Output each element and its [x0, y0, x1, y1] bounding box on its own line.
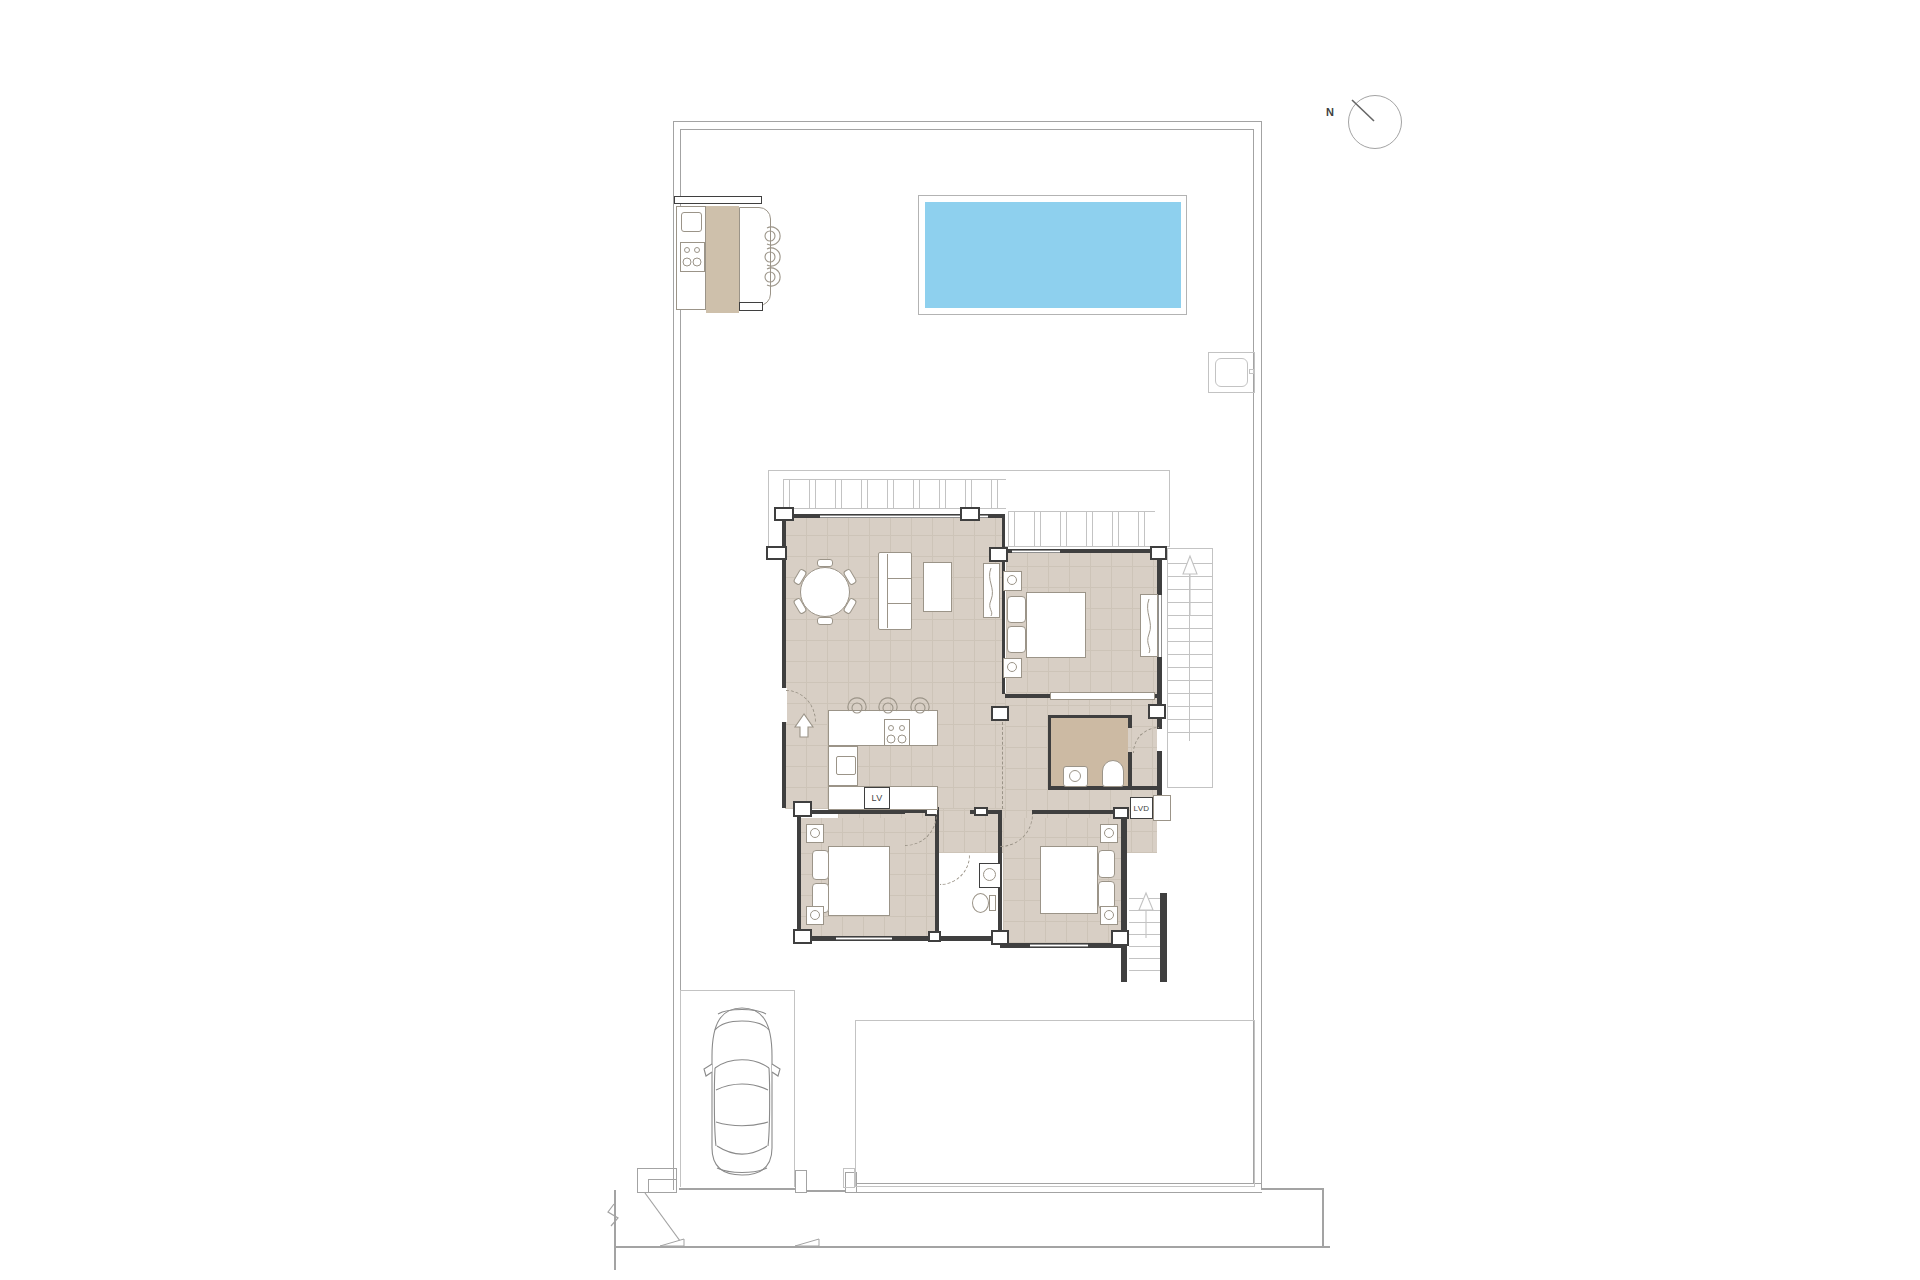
laundry-label: LVD: [1134, 804, 1150, 813]
bedroom3-south-window: [1030, 944, 1088, 948]
wall-bathroom2-west: [935, 814, 939, 940]
bed1-lamp: [1007, 575, 1017, 585]
bed3-pillow: [1098, 850, 1115, 878]
compass-north-label: N: [1326, 106, 1334, 118]
wall-ensuite-east-a: [1128, 715, 1132, 728]
wall-east-lower: [1121, 810, 1127, 982]
deck-slats-right: [1008, 511, 1155, 547]
living-hall-opening-line: [1002, 722, 1003, 809]
wall-ensuite-north: [1048, 715, 1130, 718]
wall-ensuite-east-b: [1128, 752, 1132, 788]
small-staircase-treads: [1129, 898, 1160, 982]
sidewalk-line: [615, 1246, 1330, 1248]
pool-water: [925, 202, 1181, 308]
bbq-island-counter: [706, 206, 739, 308]
column: [766, 546, 787, 560]
kitchen-sink: [836, 756, 856, 775]
ensuite-sink-bowl: [1069, 770, 1081, 782]
column: [1111, 930, 1129, 946]
curb-mark: [795, 1239, 819, 1246]
bed3-lamp: [1104, 910, 1114, 920]
column: [793, 801, 812, 817]
patio-notch: [843, 1168, 855, 1188]
column: [1113, 807, 1129, 819]
bedroom1-window-curtain-east: [1140, 594, 1158, 657]
laundry-box: LVD: [1130, 797, 1153, 819]
bathroom2-toilet-bowl: [972, 893, 989, 913]
wall-bedrooms-north-a: [800, 810, 905, 814]
sofa-backrest-line: [887, 554, 888, 628]
bed1-lamp: [1007, 662, 1017, 672]
bed2-lamp: [810, 910, 820, 920]
coffee-table: [923, 562, 952, 612]
bed3-mattress: [1040, 846, 1098, 914]
bbq-sink: [681, 212, 702, 232]
patio-outline: [855, 1020, 1255, 1187]
sidewalk-edge-right: [1322, 1189, 1324, 1247]
column: [974, 807, 988, 816]
wall-west-lower: [797, 805, 801, 941]
column: [989, 547, 1008, 562]
wall-east-mid: [1157, 751, 1162, 798]
bedroom1-north-window: [1012, 550, 1060, 553]
bbq-bar-counter: [739, 207, 771, 306]
deck-slats-left: [783, 479, 1006, 509]
break-symbol: [608, 1204, 618, 1226]
bed2-lamp: [810, 828, 820, 838]
kitchen-cooktop: [884, 719, 910, 746]
wall-bedrooms-north-c: [1032, 810, 1121, 814]
column: [1150, 546, 1167, 560]
curb-mark: [660, 1239, 684, 1246]
bed2-pillow: [812, 850, 829, 880]
column: [991, 930, 1009, 945]
kitchen-counter-top: [828, 710, 938, 746]
dining-chair: [817, 617, 833, 625]
wall-south-left: [797, 936, 1002, 941]
sofa-cushion-line: [888, 578, 911, 579]
bbq-top-wall: [674, 196, 762, 204]
main-staircase-stringer: [1189, 563, 1190, 741]
bathroom2-toilet-tank: [989, 895, 996, 911]
gate-post-left-step: [648, 1179, 677, 1193]
bedroom1-cased-opening: [1050, 692, 1155, 700]
wall-ensuite-west: [1048, 715, 1051, 788]
sofa: [878, 552, 912, 630]
sidewalk-edge-left: [614, 1190, 616, 1270]
bed1-mattress: [1026, 592, 1086, 658]
gate-swing-line: [645, 1193, 683, 1245]
garage-door-line: [679, 1188, 799, 1190]
pedestrian-gate-line: [807, 1190, 847, 1192]
sofa-cushion-line: [888, 603, 911, 604]
dishwasher-label: LV: [872, 793, 883, 803]
bedroom2-south-window: [836, 937, 892, 941]
parking-bay: [680, 990, 795, 1187]
column: [793, 929, 812, 944]
column: [774, 507, 794, 521]
street-wall-extension: [1262, 1188, 1324, 1190]
column: [928, 931, 941, 942]
dining-chair: [817, 559, 833, 567]
bed1-pillow: [1007, 596, 1026, 623]
laundry-counter: [1153, 795, 1171, 821]
shower-box-inner: [1215, 358, 1248, 387]
bathroom2-sink-bowl: [983, 868, 996, 881]
bbq-bottom-wall: [739, 302, 763, 311]
gate-post-middle: [795, 1170, 807, 1193]
bedroom1-window-curtain-west: [983, 563, 1000, 618]
bed3-pillow: [1098, 881, 1115, 909]
main-staircase-treads: [1167, 563, 1213, 741]
ensuite-toilet: [1102, 760, 1124, 787]
bed1-pillow: [1007, 626, 1026, 653]
dishwasher-box: LV: [864, 787, 890, 809]
column: [960, 507, 980, 521]
shower-knob: [1249, 369, 1254, 374]
site-plan: N: [0, 0, 1920, 1280]
column: [991, 706, 1009, 721]
bedroom1-east-window: [1158, 595, 1162, 657]
column: [1148, 704, 1166, 719]
bbq-grill: [680, 242, 705, 272]
bbq-bottom-counter: [706, 305, 739, 313]
bed2-mattress: [828, 846, 890, 916]
bed3-lamp: [1104, 828, 1114, 838]
small-staircase-rail: [1160, 893, 1167, 982]
compass-circle: [1348, 95, 1402, 149]
